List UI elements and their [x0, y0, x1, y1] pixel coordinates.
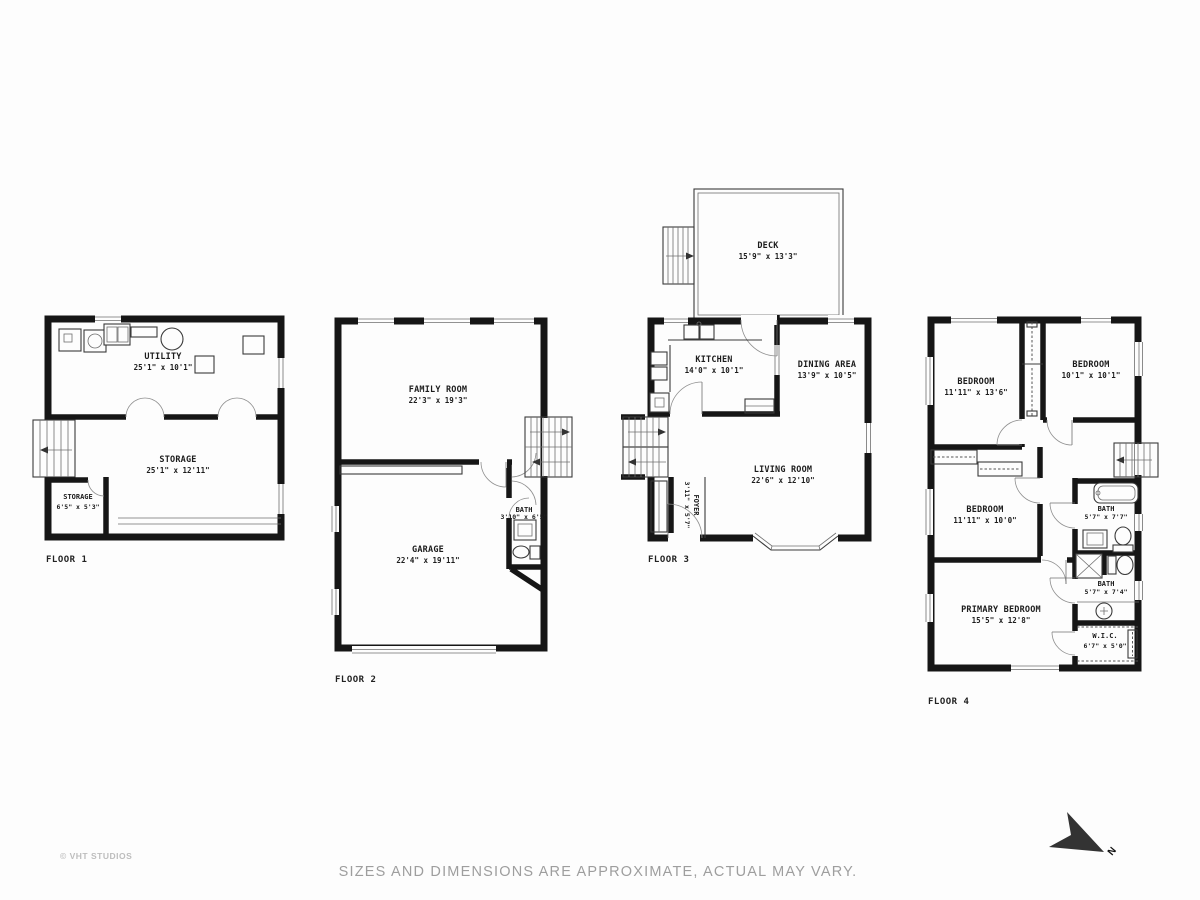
- floor-3-openings: [645, 315, 873, 543]
- garage-dims: 22'4" x 19'11": [396, 556, 459, 565]
- compass: N: [1049, 812, 1119, 858]
- bedroom-1-label: BEDROOM: [957, 377, 994, 387]
- floor-plan-page: UTILITY 25'1" x 10'1" STORAGE 25'1" x 12…: [0, 0, 1200, 900]
- bath-dims: 3'10" x 6'5": [501, 513, 548, 521]
- floor-4-plan: BEDROOM 11'11" x 13'6" BEDROOM 10'1" x 1…: [923, 315, 1158, 707]
- floor-2-walls: [335, 321, 546, 648]
- bedroom-2-label: BEDROOM: [1072, 360, 1109, 370]
- floor-3-walls: [648, 315, 868, 538]
- bedroom-2-dims: 10'1" x 10'1": [1062, 371, 1121, 380]
- stove-icon: [651, 352, 667, 365]
- bathtub-icon: [1094, 483, 1138, 503]
- floor-2-plan: FAMILY ROOM 22'3" x 19'3" GARAGE 22'4" x…: [329, 315, 572, 685]
- floor-3-labels: DECK 15'9" x 13'3" KITCHEN 14'0" x 10'1"…: [648, 241, 856, 565]
- wic-dims: 6'7" x 5'0": [1083, 642, 1126, 650]
- kitchen-dims: 14'0" x 10'1": [685, 366, 744, 375]
- bath-1-fixtures: [1083, 527, 1133, 552]
- primary-bedroom-label: PRIMARY BEDROOM: [961, 605, 1041, 615]
- bedroom-3-dims: 11'11" x 10'0": [953, 516, 1016, 525]
- foyer-dims: 3'11" x 5'7": [683, 482, 691, 529]
- dining-area-label: DINING AREA: [798, 360, 857, 370]
- fridge-icon: [650, 393, 669, 412]
- floor-1-plan: UTILITY 25'1" x 10'1" STORAGE 25'1" x 12…: [33, 314, 286, 565]
- kitchen-sink-icon: [684, 325, 699, 339]
- living-room-dims: 22'6" x 12'10": [751, 476, 814, 485]
- storage-label: STORAGE: [159, 455, 196, 465]
- floor-3-stairs: [621, 417, 668, 477]
- kitchen-label: KITCHEN: [695, 355, 732, 365]
- floor-2-details: [332, 319, 572, 653]
- living-room-label: LIVING ROOM: [754, 465, 813, 475]
- garage-label: GARAGE: [412, 545, 444, 555]
- closets: [931, 322, 1043, 476]
- deck-dims: 15'9" x 13'3": [739, 252, 798, 261]
- north-arrow-icon: [1049, 812, 1104, 852]
- floor-2-title: FLOOR 2: [335, 675, 376, 685]
- floor-3-details: [621, 319, 871, 550]
- water-heater-icon: [161, 328, 183, 350]
- toilet-icon: [513, 546, 540, 559]
- floor-4-title: FLOOR 4: [928, 697, 970, 707]
- floor-3-plan: DECK 15'9" x 13'3" KITCHEN 14'0" x 10'1"…: [621, 189, 873, 565]
- floor-1-labels: UTILITY 25'1" x 10'1" STORAGE 25'1" x 12…: [46, 352, 210, 565]
- washer-icon: [59, 329, 81, 351]
- wic-label: W.I.C.: [1092, 632, 1117, 640]
- storage-dims: 25'1" x 12'11": [146, 466, 209, 475]
- equipment-box: [195, 356, 214, 373]
- bath-1-label: BATH: [1098, 505, 1115, 513]
- counter: [131, 327, 157, 337]
- laundry-sink-icon: [104, 324, 130, 345]
- floor-plan-canvas: UTILITY 25'1" x 10'1" STORAGE 25'1" x 12…: [0, 0, 1200, 900]
- disclaimer-text: SIZES AND DIMENSIONS ARE APPROXIMATE, AC…: [339, 864, 858, 880]
- family-room-dims: 22'3" x 19'3": [409, 396, 468, 405]
- bedroom-3-label: BEDROOM: [966, 505, 1003, 515]
- family-room-label: FAMILY ROOM: [409, 385, 468, 395]
- bedroom-1-dims: 11'11" x 13'6": [944, 388, 1007, 397]
- utility-dims: 25'1" x 10'1": [134, 363, 193, 372]
- foyer-label: FOYER: [692, 494, 700, 516]
- bath-2-label: BATH: [1098, 580, 1115, 588]
- dryer-icon: [84, 330, 106, 352]
- dining-area-dims: 13'9" x 10'5": [798, 371, 857, 380]
- bath-2-dims: 5'7" x 7'4": [1084, 588, 1127, 596]
- utility-label: UTILITY: [144, 352, 182, 362]
- north-label: N: [1106, 845, 1119, 858]
- primary-bedroom-dims: 15'5" x 12'8": [972, 616, 1031, 625]
- equipment-box: [243, 336, 264, 354]
- copyright-text: © VHT STUDIOS: [60, 851, 132, 861]
- floor-2-openings: [329, 315, 553, 656]
- floor-1-title: FLOOR 1: [46, 555, 87, 565]
- storage-2-label: STORAGE: [63, 493, 93, 501]
- deck-label: DECK: [757, 241, 779, 251]
- storage-2-dims: 6'5" x 5'3": [56, 503, 99, 511]
- floor-3-title: FLOOR 3: [648, 555, 689, 565]
- bath-1-dims: 5'7" x 7'7": [1084, 513, 1127, 521]
- bath-sink-icon: [514, 520, 536, 540]
